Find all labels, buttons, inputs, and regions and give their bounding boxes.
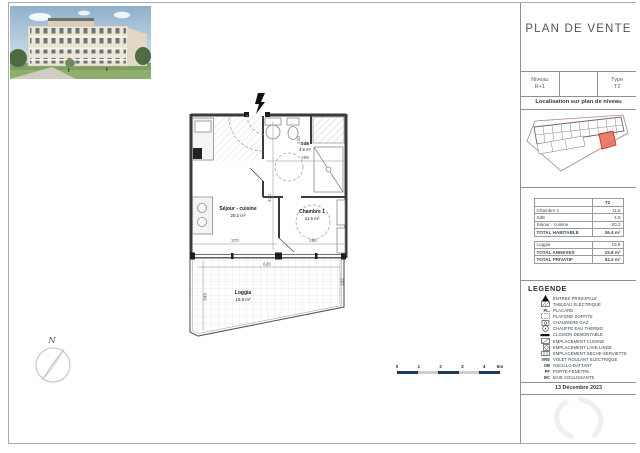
niveau-value: R+1 (535, 84, 545, 91)
wardrobe (337, 200, 345, 253)
title-block: PLAN DE VENTE (521, 3, 636, 72)
scale-numbers: 0 1 2 3 4 5m (386, 364, 500, 370)
gaine-hatch (313, 117, 344, 143)
dim-sejour-height: 470 (267, 194, 272, 202)
entree-principale-icon (537, 295, 553, 301)
surface-row-label: Chambre 1 (534, 207, 592, 214)
entrance-arrow-icon (255, 93, 265, 114)
dim-loggia-width: 626 (263, 262, 271, 267)
placard-abbrev: PL. (537, 308, 553, 313)
scale-tick-4: 4 (483, 364, 486, 369)
room-loggia-area: 15.8 m² (236, 297, 251, 302)
surface-header-empty (534, 199, 592, 207)
room-chambre-name: Chambre 1 (299, 209, 325, 215)
seche-serviette-icon (537, 351, 553, 356)
localisation-mini-plan (521, 109, 636, 188)
niveau-type-table: Niveau R+1 Type T2 (521, 71, 636, 97)
room-chambre-area: 11.5 m² (305, 216, 320, 221)
lave-linge-icon (537, 344, 553, 351)
room-sde-name: SdE (301, 141, 310, 146)
type-value: T2 (614, 84, 621, 91)
loggia-row-value: 15.8 (592, 241, 623, 248)
surface-table: T2 Chambre 111.5 SdE4.8 Séjour - cuisine… (534, 198, 624, 264)
dim-loggia-height: 343 (203, 293, 208, 301)
north-compass: N (23, 325, 83, 395)
title-block-column: PLAN DE VENTE Niveau R+1 Type T2 Localis… (520, 3, 636, 443)
plan-de-vente-sheet: 370 290 470 299 210 626 343 192 Séjour -… (0, 0, 640, 453)
total-habitable-value: 36.4 m² (592, 229, 623, 236)
watermark-logo (521, 395, 636, 443)
vre-abbrev: VRE (537, 357, 553, 362)
surface-row-label: SdE (534, 214, 592, 221)
surface-row-label: Séjour - cuisine (534, 221, 592, 228)
scale-tick-3: 3 (461, 364, 464, 369)
surface-row-value: 11.5 (592, 207, 623, 214)
legend: LEGENDE ENTREE PRINCIPALE TABLEAU ELECTR… (521, 280, 636, 382)
page-title: PLAN DE VENTE (521, 23, 636, 35)
total-habitable-label: TOTAL HABITABLE (534, 229, 592, 236)
legend-item: EMPLACEMENT SECHE-SERVIETTE (537, 350, 636, 356)
date: 13 Décembre 2023 (521, 382, 636, 395)
window-wall (191, 255, 346, 258)
scale-tick-1: 1 (418, 364, 421, 369)
room-sejour-area: 20.2 m² (231, 213, 246, 218)
highlighted-unit (599, 131, 616, 149)
bc-abbrev: BC (537, 375, 553, 380)
pf-abbrev: PF (537, 369, 553, 374)
cloison-icon (537, 332, 553, 338)
total-annexes-label: TOTAL ANNEXES (534, 249, 592, 256)
scale-tick-0: 0 (396, 364, 399, 369)
loggia-row-label: Loggia (534, 241, 592, 248)
niveau-label: Niveau (531, 77, 548, 84)
scale-tick-2: 2 (439, 364, 442, 369)
niveau-cell: Niveau R+1 (521, 71, 560, 96)
total-annexes-value: 15.8 m² (592, 249, 623, 256)
dim-sejour-width: 370 (231, 238, 239, 243)
dim-sde-width: 299 (301, 155, 309, 160)
plafond-soffite-icon (537, 313, 553, 319)
scale-tick-5: 5m (497, 364, 504, 369)
surface-header-type: T2 (592, 199, 623, 207)
scale-segments (397, 371, 500, 374)
dim-loggia-right: 192 (340, 278, 345, 286)
loggia-outline (190, 258, 344, 336)
surface-row-value: 20.2 (592, 221, 623, 228)
type-label: Type (611, 77, 623, 84)
tableau-electrique-icon (537, 301, 553, 307)
room-sejour-name: Séjour - cuisine (219, 206, 256, 212)
room-sde-area: 4.8 m² (299, 147, 311, 152)
empty-cell (560, 71, 599, 96)
dim-chambre-width: 290 (309, 238, 317, 243)
legend-item: BC BAIE COULISSANTE (537, 375, 636, 381)
surface-table-zone: T2 Chambre 111.5 SdE4.8 Séjour - cuisine… (521, 187, 636, 281)
scale-bar: 0 1 2 3 4 5m (386, 364, 500, 374)
localisation-heading: Localisation sur plan de niveau (521, 96, 636, 110)
total-privatif-label: TOTAL PRIVATIF (534, 256, 592, 263)
type-cell: Type T2 (598, 71, 636, 96)
ob-abbrev: OB (537, 363, 553, 368)
surface-row-value: 4.8 (592, 214, 623, 221)
room-loggia-name: Loggia (235, 290, 252, 296)
legend-heading: LEGENDE (528, 284, 636, 293)
total-privatif-value: 52.2 m² (592, 256, 623, 263)
kitchen-fixtures (193, 118, 214, 234)
sheet-frame: 370 290 470 299 210 626 343 192 Séjour -… (8, 2, 636, 444)
north-label: N (47, 336, 56, 346)
